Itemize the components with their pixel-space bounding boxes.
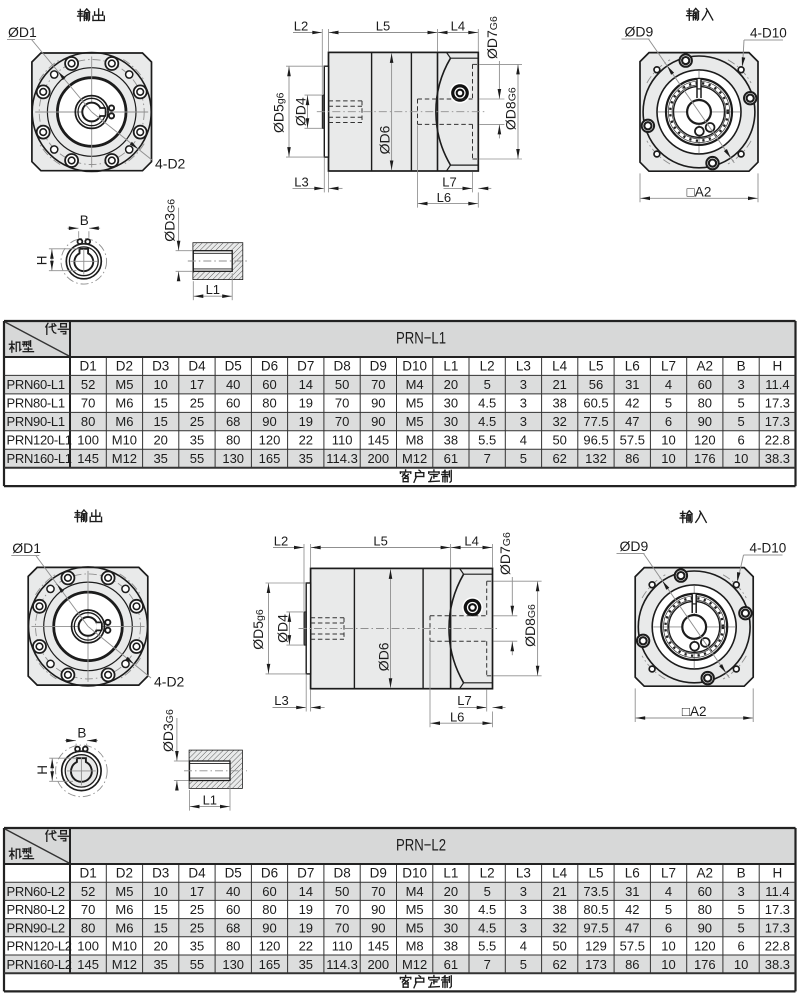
svg-text:80: 80: [262, 902, 276, 917]
svg-text:25: 25: [190, 902, 204, 917]
svg-text:4-D2: 4-D2: [155, 156, 186, 172]
svg-text:10: 10: [661, 433, 675, 448]
svg-text:22.8: 22.8: [765, 433, 790, 448]
svg-text:114.3: 114.3: [326, 957, 358, 972]
svg-text:90: 90: [698, 920, 712, 935]
svg-text:5: 5: [665, 396, 672, 411]
svg-text:PRN80-L1: PRN80-L1: [7, 396, 65, 411]
svg-text:ØD9: ØD9: [620, 538, 649, 554]
svg-text:80: 80: [698, 396, 712, 411]
svg-text:70: 70: [335, 396, 349, 411]
svg-text:L3: L3: [516, 359, 531, 374]
svg-text:90: 90: [262, 414, 276, 429]
svg-text:38: 38: [552, 902, 566, 917]
svg-text:70: 70: [335, 902, 349, 917]
svg-text:100: 100: [77, 939, 99, 954]
svg-text:ØD1: ØD1: [12, 540, 41, 556]
svg-text:22: 22: [299, 939, 313, 954]
svg-text:5: 5: [484, 377, 491, 392]
svg-text:7: 7: [484, 451, 491, 466]
svg-text:M8: M8: [406, 939, 424, 954]
svg-text:20: 20: [444, 377, 458, 392]
svg-text:10: 10: [153, 377, 167, 392]
svg-text:PRN−L1: PRN−L1: [396, 329, 446, 348]
svg-text:11.4: 11.4: [765, 377, 789, 392]
svg-text:56: 56: [589, 377, 603, 392]
svg-text:10: 10: [734, 957, 748, 972]
svg-text:ØD6: ØD6: [377, 125, 393, 154]
svg-text:ØD4: ØD4: [274, 614, 290, 643]
svg-text:M5: M5: [406, 396, 424, 411]
svg-text:80: 80: [81, 414, 95, 429]
svg-text:10: 10: [661, 939, 675, 954]
svg-text:80: 80: [81, 920, 95, 935]
svg-text:D9: D9: [370, 866, 387, 881]
svg-text:21: 21: [552, 884, 566, 899]
svg-text:60: 60: [698, 884, 712, 899]
svg-text:57.5: 57.5: [620, 433, 645, 448]
svg-text:D6: D6: [261, 359, 278, 374]
svg-text:31: 31: [625, 377, 639, 392]
svg-text:7: 7: [484, 957, 491, 972]
svg-text:96.5: 96.5: [583, 433, 608, 448]
svg-text:35: 35: [190, 433, 204, 448]
svg-text:70: 70: [335, 414, 349, 429]
svg-text:M10: M10: [112, 939, 137, 954]
svg-text:42: 42: [625, 902, 639, 917]
svg-text:D8: D8: [333, 359, 350, 374]
svg-text:H: H: [773, 359, 783, 374]
svg-text:PRN90-L2: PRN90-L2: [7, 920, 65, 935]
svg-text:77.5: 77.5: [583, 414, 608, 429]
svg-text:3: 3: [520, 902, 527, 917]
svg-text:80: 80: [262, 396, 276, 411]
svg-text:35: 35: [299, 451, 313, 466]
svg-text:L2: L2: [480, 359, 495, 374]
svg-text:4.5: 4.5: [478, 396, 496, 411]
svg-text:ØD9: ØD9: [625, 24, 654, 40]
svg-text:M12: M12: [402, 957, 427, 972]
svg-text:L7: L7: [442, 174, 456, 189]
svg-text:4: 4: [665, 377, 672, 392]
svg-text:68: 68: [226, 920, 240, 935]
svg-text:10: 10: [661, 957, 675, 972]
svg-text:10: 10: [661, 451, 675, 466]
svg-text:50: 50: [552, 433, 566, 448]
svg-text:61: 61: [444, 957, 458, 972]
svg-text:30: 30: [444, 902, 458, 917]
svg-text:35: 35: [299, 957, 313, 972]
svg-text:D3: D3: [152, 359, 169, 374]
svg-text:D7: D7: [297, 359, 314, 374]
svg-text:6: 6: [665, 920, 672, 935]
svg-text:3: 3: [520, 377, 527, 392]
svg-text:19: 19: [299, 902, 313, 917]
svg-text:80: 80: [226, 433, 240, 448]
svg-text:110: 110: [332, 433, 353, 448]
svg-text:D1: D1: [79, 359, 96, 374]
svg-text:90: 90: [371, 902, 385, 917]
svg-text:L6: L6: [625, 866, 640, 881]
svg-text:17.3: 17.3: [765, 396, 790, 411]
svg-text:D10: D10: [402, 359, 427, 374]
svg-text:L6: L6: [450, 710, 464, 725]
svg-text:73.5: 73.5: [583, 884, 608, 899]
svg-text:□A2: □A2: [682, 704, 707, 719]
svg-text:25: 25: [190, 414, 204, 429]
svg-text:L3: L3: [516, 866, 531, 881]
svg-text:200: 200: [367, 451, 389, 466]
svg-text:M10: M10: [112, 433, 137, 448]
svg-text:B: B: [737, 359, 746, 374]
svg-text:PRN160-L2: PRN160-L2: [7, 957, 72, 972]
svg-text:165: 165: [259, 957, 281, 972]
svg-text:ØD1: ØD1: [8, 24, 37, 40]
svg-text:5.5: 5.5: [478, 433, 496, 448]
svg-text:15: 15: [153, 920, 167, 935]
svg-text:L4: L4: [552, 866, 568, 881]
svg-text:M5: M5: [115, 884, 133, 899]
svg-text:D8: D8: [333, 866, 350, 881]
svg-text:70: 70: [81, 396, 95, 411]
svg-text:4-D2: 4-D2: [154, 674, 185, 690]
svg-text:4-D10: 4-D10: [750, 541, 787, 556]
svg-text:D9: D9: [370, 359, 387, 374]
svg-text:B: B: [77, 726, 86, 741]
svg-text:□A2: □A2: [687, 185, 712, 200]
svg-text:PRN160-L1: PRN160-L1: [7, 451, 72, 466]
svg-text:15: 15: [153, 396, 167, 411]
svg-text:62: 62: [552, 957, 566, 972]
svg-text:31: 31: [625, 884, 639, 899]
svg-text:38: 38: [552, 396, 566, 411]
svg-text:100: 100: [77, 433, 99, 448]
svg-text:L4: L4: [552, 359, 568, 374]
svg-text:D3: D3: [152, 866, 169, 881]
svg-text:25: 25: [190, 396, 204, 411]
svg-text:55: 55: [190, 451, 204, 466]
svg-text:114.3: 114.3: [326, 451, 358, 466]
svg-text:22: 22: [299, 433, 313, 448]
svg-text:50: 50: [335, 884, 349, 899]
svg-text:4: 4: [665, 884, 672, 899]
svg-text:M4: M4: [406, 884, 424, 899]
svg-text:15: 15: [153, 414, 167, 429]
svg-text:6: 6: [665, 414, 672, 429]
svg-text:35: 35: [190, 939, 204, 954]
svg-text:3: 3: [520, 920, 527, 935]
svg-text:5: 5: [520, 451, 527, 466]
svg-text:55: 55: [190, 957, 204, 972]
svg-text:35: 35: [153, 451, 167, 466]
svg-text:PRN−L2: PRN−L2: [396, 836, 446, 855]
svg-text:17.3: 17.3: [765, 902, 790, 917]
svg-text:60: 60: [226, 396, 240, 411]
svg-text:120: 120: [259, 433, 281, 448]
svg-text:145: 145: [367, 433, 389, 448]
svg-text:90: 90: [262, 920, 276, 935]
svg-text:A2: A2: [697, 359, 714, 374]
svg-text:145: 145: [77, 957, 99, 972]
svg-text:D5: D5: [225, 359, 242, 374]
svg-text:30: 30: [444, 920, 458, 935]
svg-text:L5: L5: [588, 359, 603, 374]
svg-text:86: 86: [625, 451, 639, 466]
svg-text:38.3: 38.3: [765, 957, 790, 972]
svg-text:40: 40: [226, 377, 240, 392]
svg-text:B: B: [737, 866, 746, 881]
svg-text:17: 17: [190, 884, 204, 899]
svg-text:M4: M4: [406, 377, 424, 392]
svg-text:129: 129: [585, 939, 607, 954]
svg-text:6: 6: [737, 433, 744, 448]
svg-text:M5: M5: [406, 414, 424, 429]
svg-text:173: 173: [585, 957, 607, 972]
svg-text:60: 60: [262, 377, 276, 392]
svg-text:20: 20: [153, 433, 167, 448]
svg-text:176: 176: [694, 451, 716, 466]
svg-text:21: 21: [552, 377, 566, 392]
svg-text:165: 165: [259, 451, 281, 466]
svg-text:61: 61: [444, 451, 458, 466]
svg-text:90: 90: [371, 396, 385, 411]
svg-text:3: 3: [737, 884, 744, 899]
svg-text:L4: L4: [451, 18, 465, 33]
svg-text:90: 90: [371, 920, 385, 935]
svg-text:19: 19: [299, 396, 313, 411]
svg-text:52: 52: [81, 377, 95, 392]
svg-text:50: 50: [335, 377, 349, 392]
svg-text:86: 86: [625, 957, 639, 972]
svg-text:120: 120: [694, 433, 716, 448]
svg-text:10: 10: [153, 884, 167, 899]
svg-text:M6: M6: [115, 902, 133, 917]
svg-text:D4: D4: [188, 359, 206, 374]
svg-text:70: 70: [371, 884, 385, 899]
svg-text:B: B: [80, 213, 89, 228]
svg-text:5: 5: [737, 902, 744, 917]
svg-text:62: 62: [552, 451, 566, 466]
svg-text:5: 5: [520, 957, 527, 972]
svg-text:5: 5: [737, 396, 744, 411]
svg-text:H: H: [35, 255, 50, 265]
svg-text:47: 47: [625, 920, 639, 935]
svg-text:19: 19: [299, 414, 313, 429]
svg-text:15: 15: [153, 902, 167, 917]
svg-text:L2: L2: [274, 533, 288, 548]
svg-text:70: 70: [335, 920, 349, 935]
svg-text:35: 35: [153, 957, 167, 972]
svg-text:L3: L3: [274, 693, 288, 708]
svg-text:38: 38: [444, 939, 458, 954]
svg-text:60: 60: [262, 884, 276, 899]
svg-text:ØD4: ØD4: [293, 97, 309, 126]
svg-text:20: 20: [153, 939, 167, 954]
svg-text:3: 3: [520, 396, 527, 411]
svg-text:L1: L1: [443, 359, 458, 374]
svg-text:ØD6: ØD6: [375, 642, 391, 671]
svg-text:M5: M5: [406, 920, 424, 935]
svg-text:14: 14: [299, 884, 313, 899]
svg-text:120: 120: [259, 939, 281, 954]
svg-text:PRN120-L2: PRN120-L2: [7, 939, 72, 954]
svg-text:3: 3: [520, 414, 527, 429]
svg-text:L5: L5: [588, 866, 603, 881]
svg-text:4.5: 4.5: [478, 902, 496, 917]
svg-text:L5: L5: [376, 18, 390, 33]
svg-text:D2: D2: [116, 866, 133, 881]
svg-text:5: 5: [665, 902, 672, 917]
svg-text:110: 110: [332, 939, 353, 954]
svg-text:D4: D4: [188, 866, 206, 881]
svg-text:4.5: 4.5: [478, 414, 496, 429]
svg-text:130: 130: [222, 451, 244, 466]
svg-text:120: 120: [694, 939, 716, 954]
svg-text:50: 50: [552, 939, 566, 954]
svg-text:19: 19: [299, 920, 313, 935]
svg-text:PRN80-L2: PRN80-L2: [7, 902, 65, 917]
svg-text:5: 5: [737, 414, 744, 429]
svg-text:L2: L2: [294, 18, 308, 33]
svg-text:30: 30: [444, 414, 458, 429]
svg-text:L6: L6: [437, 190, 451, 205]
svg-text:3: 3: [520, 884, 527, 899]
svg-text:176: 176: [694, 957, 716, 972]
svg-text:10: 10: [734, 451, 748, 466]
svg-text:L7: L7: [457, 693, 471, 708]
svg-text:M12: M12: [402, 451, 427, 466]
svg-text:L5: L5: [373, 533, 387, 548]
svg-text:200: 200: [367, 957, 389, 972]
svg-text:11.4: 11.4: [765, 884, 789, 899]
svg-text:3: 3: [737, 377, 744, 392]
svg-text:H: H: [773, 866, 783, 881]
svg-text:L7: L7: [661, 866, 676, 881]
svg-text:25: 25: [190, 920, 204, 935]
svg-text:17.3: 17.3: [765, 920, 790, 935]
svg-text:D6: D6: [261, 866, 278, 881]
svg-text:80: 80: [226, 939, 240, 954]
svg-text:4: 4: [520, 939, 527, 954]
svg-text:L7: L7: [661, 359, 676, 374]
svg-text:42: 42: [625, 396, 639, 411]
svg-text:A2: A2: [697, 866, 714, 881]
svg-text:38: 38: [444, 433, 458, 448]
svg-text:M5: M5: [406, 902, 424, 917]
svg-text:40: 40: [226, 884, 240, 899]
svg-text:20: 20: [444, 884, 458, 899]
svg-text:17.3: 17.3: [765, 414, 790, 429]
svg-text:M6: M6: [115, 920, 133, 935]
svg-text:M6: M6: [115, 414, 133, 429]
svg-text:L4: L4: [464, 533, 478, 548]
svg-text:L1: L1: [206, 282, 220, 297]
svg-text:60: 60: [226, 902, 240, 917]
svg-text:PRN90-L1: PRN90-L1: [7, 414, 65, 429]
svg-text:70: 70: [81, 902, 95, 917]
svg-text:PRN60-L1: PRN60-L1: [7, 377, 65, 392]
svg-text:L2: L2: [480, 866, 495, 881]
svg-text:90: 90: [371, 414, 385, 429]
svg-text:17: 17: [190, 377, 204, 392]
svg-text:80.5: 80.5: [583, 902, 608, 917]
svg-text:D7: D7: [297, 866, 314, 881]
svg-text:60: 60: [698, 377, 712, 392]
svg-text:D1: D1: [79, 866, 96, 881]
svg-text:PRN120-L1: PRN120-L1: [7, 433, 72, 448]
svg-text:22.8: 22.8: [765, 939, 790, 954]
svg-text:L6: L6: [625, 359, 640, 374]
svg-text:14: 14: [299, 377, 313, 392]
svg-text:L1: L1: [443, 866, 458, 881]
svg-text:M12: M12: [112, 451, 137, 466]
svg-text:60.5: 60.5: [583, 396, 608, 411]
svg-text:M6: M6: [115, 396, 133, 411]
svg-text:80: 80: [698, 902, 712, 917]
svg-text:6: 6: [737, 939, 744, 954]
svg-text:L1: L1: [203, 793, 217, 808]
svg-text:70: 70: [371, 377, 385, 392]
svg-text:M8: M8: [406, 433, 424, 448]
svg-text:38.3: 38.3: [765, 451, 790, 466]
svg-text:L3: L3: [294, 174, 308, 189]
svg-text:D2: D2: [116, 359, 133, 374]
svg-text:H: H: [35, 765, 50, 775]
svg-text:D5: D5: [225, 866, 242, 881]
svg-text:57.5: 57.5: [620, 939, 645, 954]
svg-text:5: 5: [484, 884, 491, 899]
svg-text:52: 52: [81, 884, 95, 899]
svg-text:145: 145: [77, 451, 99, 466]
svg-text:68: 68: [226, 414, 240, 429]
svg-text:32: 32: [552, 414, 566, 429]
svg-text:130: 130: [222, 957, 244, 972]
svg-text:145: 145: [367, 939, 389, 954]
svg-text:5: 5: [737, 920, 744, 935]
svg-text:D10: D10: [402, 866, 427, 881]
svg-text:M12: M12: [112, 957, 137, 972]
svg-text:132: 132: [585, 451, 607, 466]
svg-text:4: 4: [520, 433, 527, 448]
svg-text:5.5: 5.5: [478, 939, 496, 954]
svg-text:M5: M5: [115, 377, 133, 392]
svg-text:32: 32: [552, 920, 566, 935]
svg-text:4.5: 4.5: [478, 920, 496, 935]
svg-text:90: 90: [698, 414, 712, 429]
svg-text:4-D10: 4-D10: [750, 26, 787, 41]
svg-text:PRN60-L2: PRN60-L2: [7, 884, 65, 899]
svg-text:30: 30: [444, 396, 458, 411]
svg-text:47: 47: [625, 414, 639, 429]
svg-text:97.5: 97.5: [583, 920, 608, 935]
